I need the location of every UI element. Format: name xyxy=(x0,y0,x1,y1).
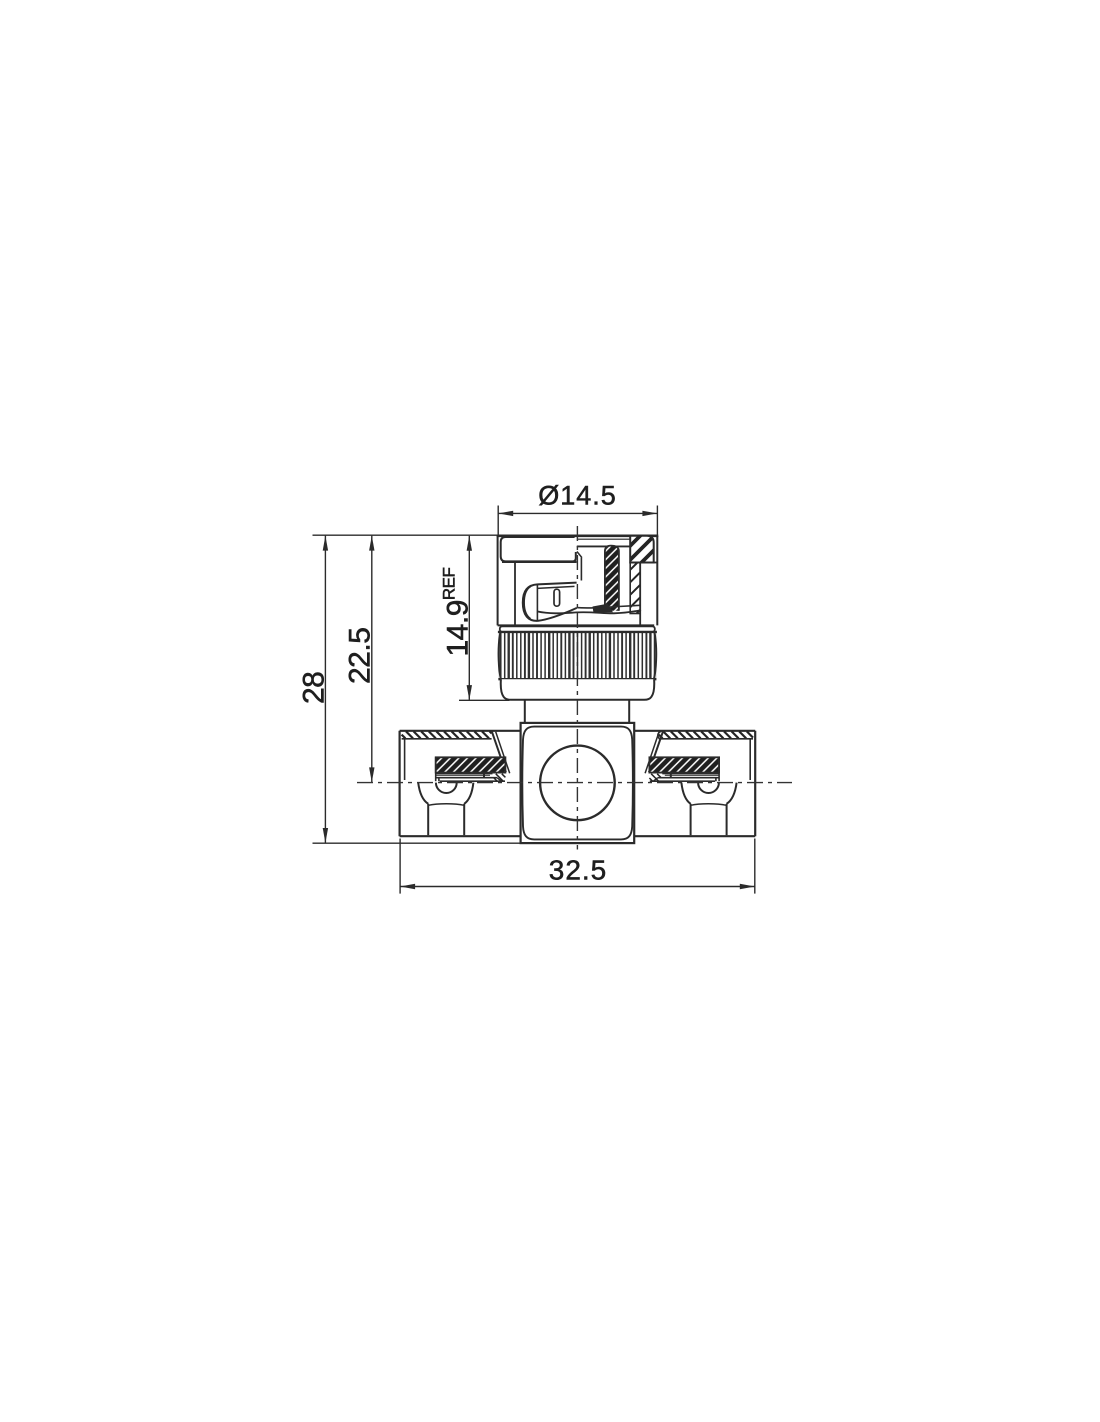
svg-text:Ø14.5: Ø14.5 xyxy=(538,481,617,511)
svg-text:32.5: 32.5 xyxy=(549,855,608,886)
